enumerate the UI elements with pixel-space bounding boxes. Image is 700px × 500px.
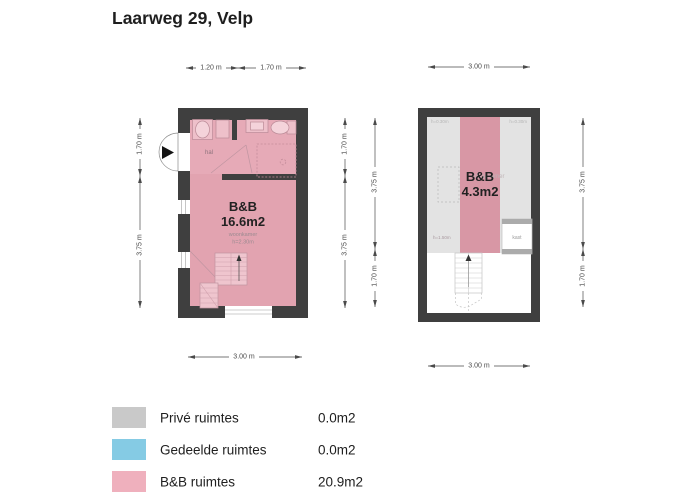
dim-left-a: 1.70 m <box>137 133 144 155</box>
dim-top-b: 1.70 m <box>260 65 282 72</box>
legend-row-gedeelde: Gedeelde ruimtes 0.0m2 <box>112 439 412 460</box>
entrance-door-icon <box>159 133 190 171</box>
bnb-room-label: B&B <box>229 199 257 214</box>
closet-label: kast <box>512 235 522 241</box>
bnb-rooms-swatch <box>112 471 146 492</box>
closet-icon: kast <box>502 219 532 254</box>
window <box>178 200 190 214</box>
dim-left-b: 1.70 m <box>372 265 379 287</box>
toilet-icon <box>271 121 289 134</box>
dim-left-b: 3.75 m <box>137 234 144 256</box>
dim-right-b: 1.70 m <box>580 265 587 287</box>
legend-row-prive: Privé ruimtes 0.0m2 <box>112 407 412 428</box>
attic-floor-plan: kast s <box>371 63 588 371</box>
legend-label: B&B ruimtes <box>160 474 235 489</box>
legend-value: 20.9m2 <box>318 474 363 489</box>
window <box>225 306 272 318</box>
height-note-right: h=0.30m <box>509 119 527 124</box>
dim-bottom: 3.00 m <box>468 363 490 370</box>
room-name-label: woonkamer <box>228 232 258 238</box>
dim-right-b: 3.75 m <box>342 234 349 256</box>
legend-label: Gedeelde ruimtes <box>160 442 267 457</box>
ground-floor-plan: hal B&B 16.6m2 woonkamer h=2.30m 1.20 m … <box>136 64 350 362</box>
bnb-room-area: 16.6m2 <box>221 214 265 229</box>
legend: Privé ruimtes 0.0m2 Gedeelde ruimtes 0.0… <box>112 407 412 500</box>
shared-rooms-swatch <box>112 439 146 460</box>
legend-value: 0.0m2 <box>318 410 356 425</box>
sink-bowl-icon <box>251 122 264 130</box>
legend-row-bnb: B&B ruimtes 20.9m2 <box>112 471 412 492</box>
dim-right-a: 3.75 m <box>580 171 587 193</box>
dim-right-a: 1.70 m <box>342 133 349 155</box>
dim-bottom: 3.00 m <box>233 354 255 361</box>
attic-bnb-label: B&B <box>466 169 494 184</box>
height-note-mid: h=1.50m <box>433 235 451 240</box>
appliance-icon <box>216 120 229 138</box>
washbasin-bowl-icon <box>196 121 210 138</box>
hall-label: hal <box>205 150 213 156</box>
ceiling-height-label: h=2.30m <box>232 240 254 246</box>
dim-top: 3.00 m <box>468 64 490 71</box>
floorplan-page: Laarweg 29, Velp <box>0 0 700 500</box>
dim-top-a: 1.20 m <box>200 65 222 72</box>
attic-bnb-area: 4.3m2 <box>462 184 499 199</box>
dim-left-a: 3.75 m <box>372 171 379 193</box>
legend-value: 0.0m2 <box>318 442 356 457</box>
legend-label: Privé ruimtes <box>160 410 239 425</box>
height-note-left: h=0.30m <box>431 119 449 124</box>
window <box>178 252 190 268</box>
private-rooms-swatch <box>112 407 146 428</box>
